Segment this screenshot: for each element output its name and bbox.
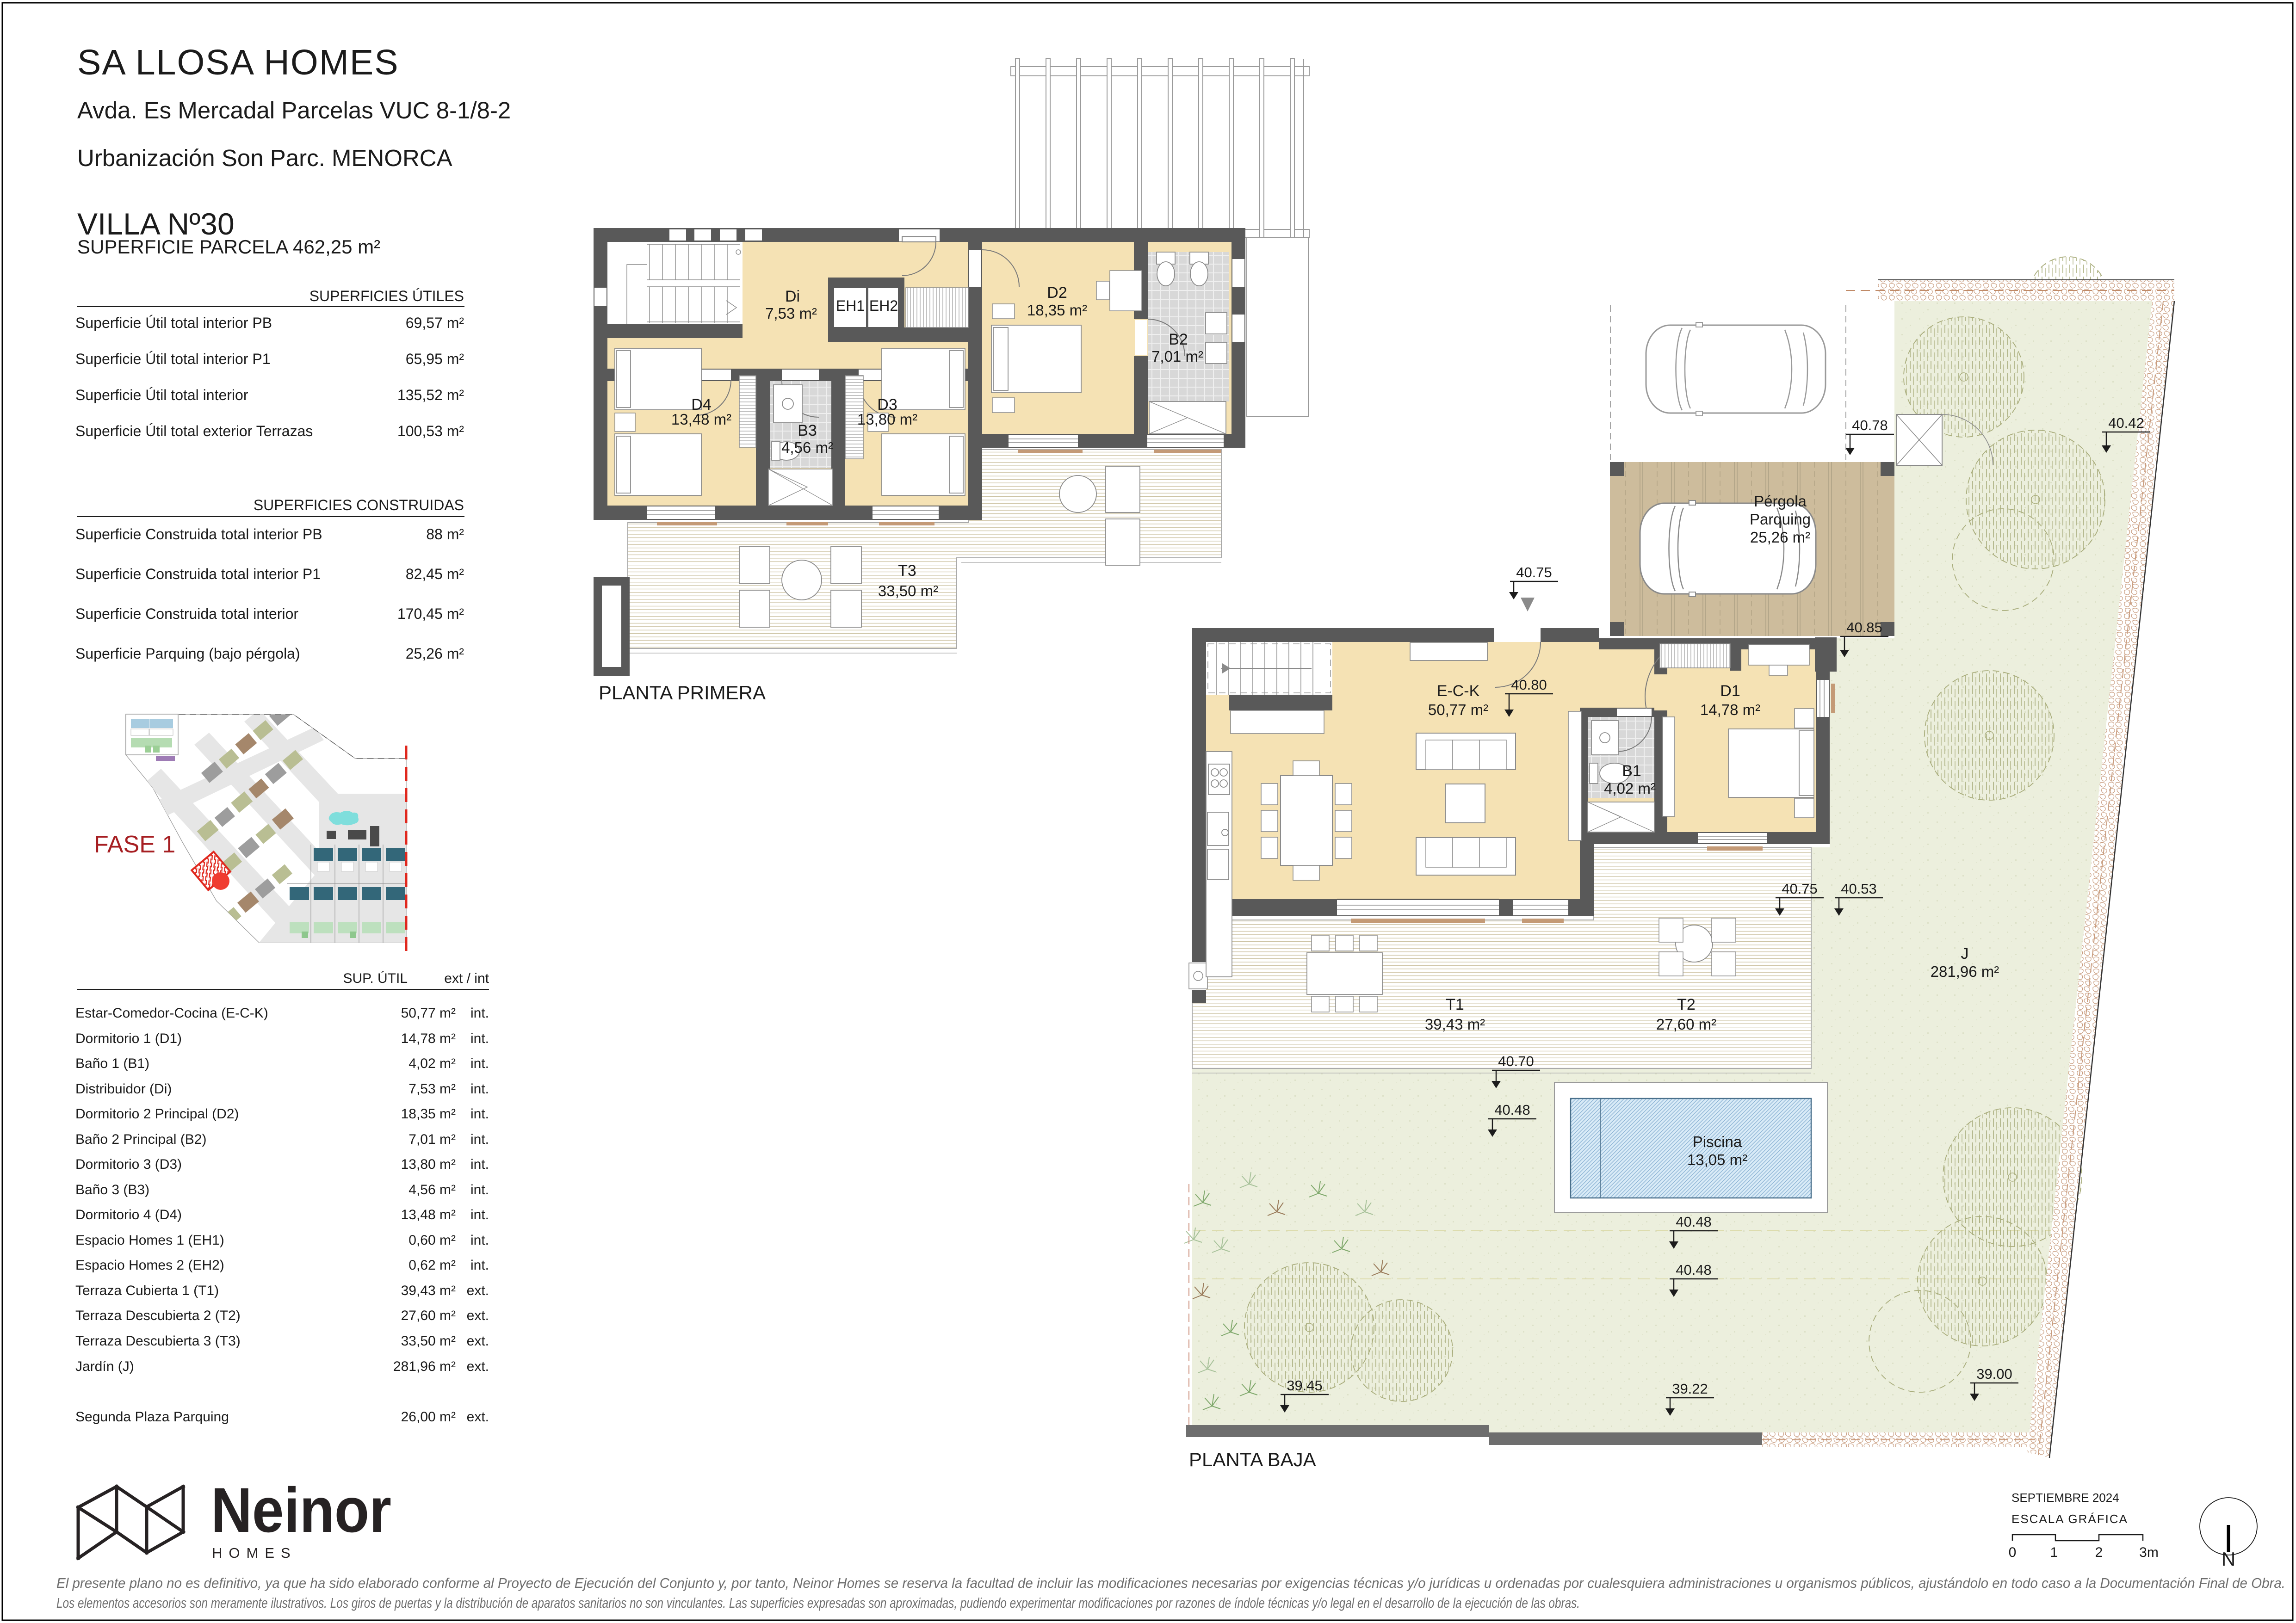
svg-text:13,05 m²: 13,05 m²: [1687, 1151, 1747, 1168]
svg-text:40.78: 40.78: [1852, 417, 1888, 433]
svg-text:Superficie Útil total interior: Superficie Útil total interior: [75, 387, 248, 403]
svg-text:40.75: 40.75: [1516, 564, 1552, 580]
svg-text:Superficie Parquing (bajo pérg: Superficie Parquing (bajo pérgola): [75, 645, 300, 662]
svg-text:14,78 m²: 14,78 m²: [1700, 701, 1760, 718]
svg-text:0,60 m²: 0,60 m²: [408, 1233, 456, 1248]
svg-text:40.80: 40.80: [1511, 677, 1547, 693]
svg-text:SA LLOSA HOMES: SA LLOSA HOMES: [77, 43, 399, 82]
svg-text:18,35 m²: 18,35 m²: [1027, 302, 1087, 319]
svg-text:27,60 m²: 27,60 m²: [401, 1308, 456, 1323]
svg-text:Espacio Homes 2 (EH2): Espacio Homes 2 (EH2): [75, 1258, 224, 1273]
svg-text:3m: 3m: [2139, 1545, 2159, 1560]
svg-text:SEPTIEMBRE 2024: SEPTIEMBRE 2024: [2011, 1491, 2119, 1505]
svg-text:T3: T3: [898, 562, 916, 580]
svg-text:SUPERFICIE PARCELA 462,25 m²: SUPERFICIE PARCELA 462,25 m²: [77, 236, 380, 258]
svg-text:7,53 m²: 7,53 m²: [408, 1081, 456, 1097]
svg-text:Urbanización Son Parc. MENORCA: Urbanización Son Parc. MENORCA: [77, 145, 452, 171]
svg-text:25,26 m²: 25,26 m²: [1750, 529, 1810, 546]
svg-text:13,80 m²: 13,80 m²: [857, 411, 917, 428]
svg-text:El presente plano no es defini: El presente plano no es definitivo, ya q…: [56, 1575, 2285, 1591]
svg-text:Terraza Descubierta 2 (T2): Terraza Descubierta 2 (T2): [75, 1308, 241, 1323]
svg-text:FASE 1: FASE 1: [94, 831, 175, 858]
svg-text:Baño 1 (B1): Baño 1 (B1): [75, 1056, 149, 1071]
svg-text:Superficie Construida total in: Superficie Construida total interior P1: [75, 566, 321, 582]
svg-text:int.: int.: [470, 1006, 489, 1021]
svg-text:PLANTA BAJA: PLANTA BAJA: [1189, 1449, 1316, 1470]
svg-text:27,60 m²: 27,60 m²: [1656, 1016, 1716, 1033]
svg-text:Neinor: Neinor: [211, 1475, 391, 1546]
svg-text:int.: int.: [470, 1207, 489, 1222]
svg-text:Baño 3 (B3): Baño 3 (B3): [75, 1182, 149, 1197]
svg-text:40.48: 40.48: [1676, 1214, 1712, 1230]
svg-text:40.48: 40.48: [1676, 1262, 1712, 1278]
svg-text:Superficie Útil total interior: Superficie Útil total interior PB: [75, 315, 272, 331]
svg-text:B3: B3: [798, 422, 817, 439]
svg-text:40.48: 40.48: [1494, 1102, 1530, 1118]
svg-text:25,26 m²: 25,26 m²: [406, 645, 464, 662]
svg-text:Baño 2 Principal (B2): Baño 2 Principal (B2): [75, 1132, 206, 1147]
svg-text:0: 0: [2009, 1545, 2017, 1560]
svg-text:4,56 m²: 4,56 m²: [408, 1182, 456, 1197]
svg-text:14,78 m²: 14,78 m²: [401, 1031, 456, 1046]
svg-text:N: N: [2222, 1548, 2235, 1570]
svg-text:50,77 m²: 50,77 m²: [401, 1006, 456, 1021]
svg-text:SUPERFICIES ÚTILES: SUPERFICIES ÚTILES: [309, 288, 464, 304]
svg-text:65,95 m²: 65,95 m²: [406, 351, 464, 367]
svg-text:Los elementos accesorios son m: Los elementos accesorios son meramente i…: [56, 1595, 1580, 1611]
svg-text:40.42: 40.42: [2108, 415, 2144, 431]
svg-text:ext.: ext.: [467, 1409, 489, 1425]
svg-text:int.: int.: [470, 1081, 489, 1097]
svg-text:4,02 m²: 4,02 m²: [1604, 780, 1656, 797]
svg-text:18,35 m²: 18,35 m²: [401, 1106, 456, 1122]
svg-text:39,43 m²: 39,43 m²: [1425, 1016, 1485, 1033]
svg-text:ext.: ext.: [467, 1283, 489, 1298]
svg-text:J: J: [1961, 945, 1969, 963]
svg-text:ext / int: ext / int: [444, 971, 489, 986]
svg-text:int.: int.: [470, 1233, 489, 1248]
svg-text:88 m²: 88 m²: [426, 526, 464, 543]
svg-text:Parquing: Parquing: [1750, 511, 1811, 528]
svg-text:170,45 m²: 170,45 m²: [397, 605, 464, 622]
svg-text:50,77 m²: 50,77 m²: [1428, 701, 1488, 718]
svg-text:D1: D1: [1720, 682, 1740, 700]
svg-text:281,96 m²: 281,96 m²: [1931, 963, 1999, 980]
svg-text:100,53 m²: 100,53 m²: [397, 423, 464, 439]
svg-text:69,57 m²: 69,57 m²: [406, 315, 464, 331]
svg-text:4,56 m²: 4,56 m²: [781, 439, 833, 456]
svg-text:Di: Di: [785, 288, 800, 305]
svg-text:40.85: 40.85: [1846, 619, 1882, 636]
svg-text:39.45: 39.45: [1287, 1377, 1323, 1394]
svg-text:Pérgola: Pérgola: [1754, 493, 1807, 510]
svg-text:26,00 m²: 26,00 m²: [401, 1409, 456, 1425]
svg-text:Terraza Cubierta 1 (T1): Terraza Cubierta 1 (T1): [75, 1283, 219, 1298]
svg-text:int.: int.: [470, 1106, 489, 1122]
svg-text:Jardín (J): Jardín (J): [75, 1359, 134, 1374]
svg-text:13,48 m²: 13,48 m²: [401, 1207, 456, 1222]
svg-text:int.: int.: [470, 1157, 489, 1172]
svg-text:D2: D2: [1047, 284, 1067, 302]
svg-text:39.00: 39.00: [1976, 1366, 2012, 1382]
svg-text:1: 1: [2050, 1545, 2058, 1560]
svg-text:40.75: 40.75: [1782, 881, 1818, 897]
svg-text:Dormitorio 4 (D4): Dormitorio 4 (D4): [75, 1207, 182, 1222]
svg-text:Distribuidor (Di): Distribuidor (Di): [75, 1081, 172, 1097]
svg-text:4,02 m²: 4,02 m²: [408, 1056, 456, 1071]
svg-text:HOMES: HOMES: [212, 1545, 297, 1561]
svg-text:Dormitorio 2 Principal (D2): Dormitorio 2 Principal (D2): [75, 1106, 239, 1122]
svg-text:E-C-K: E-C-K: [1437, 682, 1480, 700]
svg-text:135,52 m²: 135,52 m²: [397, 387, 464, 403]
svg-text:B1: B1: [1622, 762, 1641, 780]
svg-text:40.53: 40.53: [1841, 881, 1877, 897]
svg-text:ext.: ext.: [467, 1359, 489, 1374]
svg-text:ESCALA GRÁFICA: ESCALA GRÁFICA: [2011, 1512, 2128, 1526]
svg-text:B2: B2: [1169, 331, 1188, 348]
svg-text:Espacio Homes 1 (EH1): Espacio Homes 1 (EH1): [75, 1233, 224, 1248]
svg-text:Segunda Plaza Parquing: Segunda Plaza Parquing: [75, 1409, 229, 1425]
svg-text:Terraza Descubierta 3 (T3): Terraza Descubierta 3 (T3): [75, 1333, 241, 1349]
svg-text:SUPERFICIES CONSTRUIDAS: SUPERFICIES CONSTRUIDAS: [254, 497, 464, 513]
svg-text:Dormitorio 1 (D1): Dormitorio 1 (D1): [75, 1031, 182, 1046]
svg-text:SUP. ÚTIL: SUP. ÚTIL: [343, 971, 408, 986]
svg-text:281,96 m²: 281,96 m²: [393, 1359, 456, 1374]
svg-text:int.: int.: [470, 1132, 489, 1147]
svg-text:PLANTA PRIMERA: PLANTA PRIMERA: [599, 682, 766, 704]
svg-text:Superficie Construida total in: Superficie Construida total interior: [75, 605, 298, 622]
svg-text:int.: int.: [470, 1258, 489, 1273]
svg-text:Dormitorio 3 (D3): Dormitorio 3 (D3): [75, 1157, 182, 1172]
svg-text:ext.: ext.: [467, 1308, 489, 1323]
svg-text:Superficie Construida total in: Superficie Construida total interior PB: [75, 526, 322, 543]
svg-text:7,53 m²: 7,53 m²: [765, 305, 817, 322]
svg-text:82,45 m²: 82,45 m²: [406, 566, 464, 582]
svg-text:int.: int.: [470, 1182, 489, 1197]
svg-text:Estar-Comedor-Cocina (E-C-K): Estar-Comedor-Cocina (E-C-K): [75, 1006, 268, 1021]
svg-text:33,50 m²: 33,50 m²: [401, 1333, 456, 1349]
svg-text:Superficie Útil total interior: Superficie Útil total interior P1: [75, 351, 271, 367]
svg-text:Superficie Útil total exterior: Superficie Útil total exterior Terrazas: [75, 423, 313, 439]
svg-text:13,48 m²: 13,48 m²: [671, 411, 731, 428]
svg-text:T2: T2: [1677, 996, 1696, 1013]
svg-text:33,50 m²: 33,50 m²: [878, 582, 938, 599]
svg-text:7,01 m²: 7,01 m²: [408, 1132, 456, 1147]
svg-text:7,01 m²: 7,01 m²: [1151, 348, 1203, 365]
svg-text:39.22: 39.22: [1672, 1381, 1708, 1397]
svg-text:39,43 m²: 39,43 m²: [401, 1283, 456, 1298]
svg-text:T1: T1: [1446, 996, 1464, 1013]
svg-text:13,80 m²: 13,80 m²: [401, 1157, 456, 1172]
svg-text:Avda. Es Mercadal Parcelas VUC: Avda. Es Mercadal Parcelas VUC 8-1/8-2: [77, 97, 511, 123]
svg-text:Piscina: Piscina: [1693, 1133, 1742, 1150]
svg-text:40.70: 40.70: [1498, 1053, 1534, 1069]
svg-text:EH2: EH2: [869, 297, 898, 314]
svg-text:EH1: EH1: [836, 297, 865, 314]
svg-text:ext.: ext.: [467, 1333, 489, 1349]
svg-text:int.: int.: [470, 1031, 489, 1046]
svg-text:int.: int.: [470, 1056, 489, 1071]
svg-text:0,62 m²: 0,62 m²: [408, 1258, 456, 1273]
svg-text:2: 2: [2095, 1545, 2103, 1560]
